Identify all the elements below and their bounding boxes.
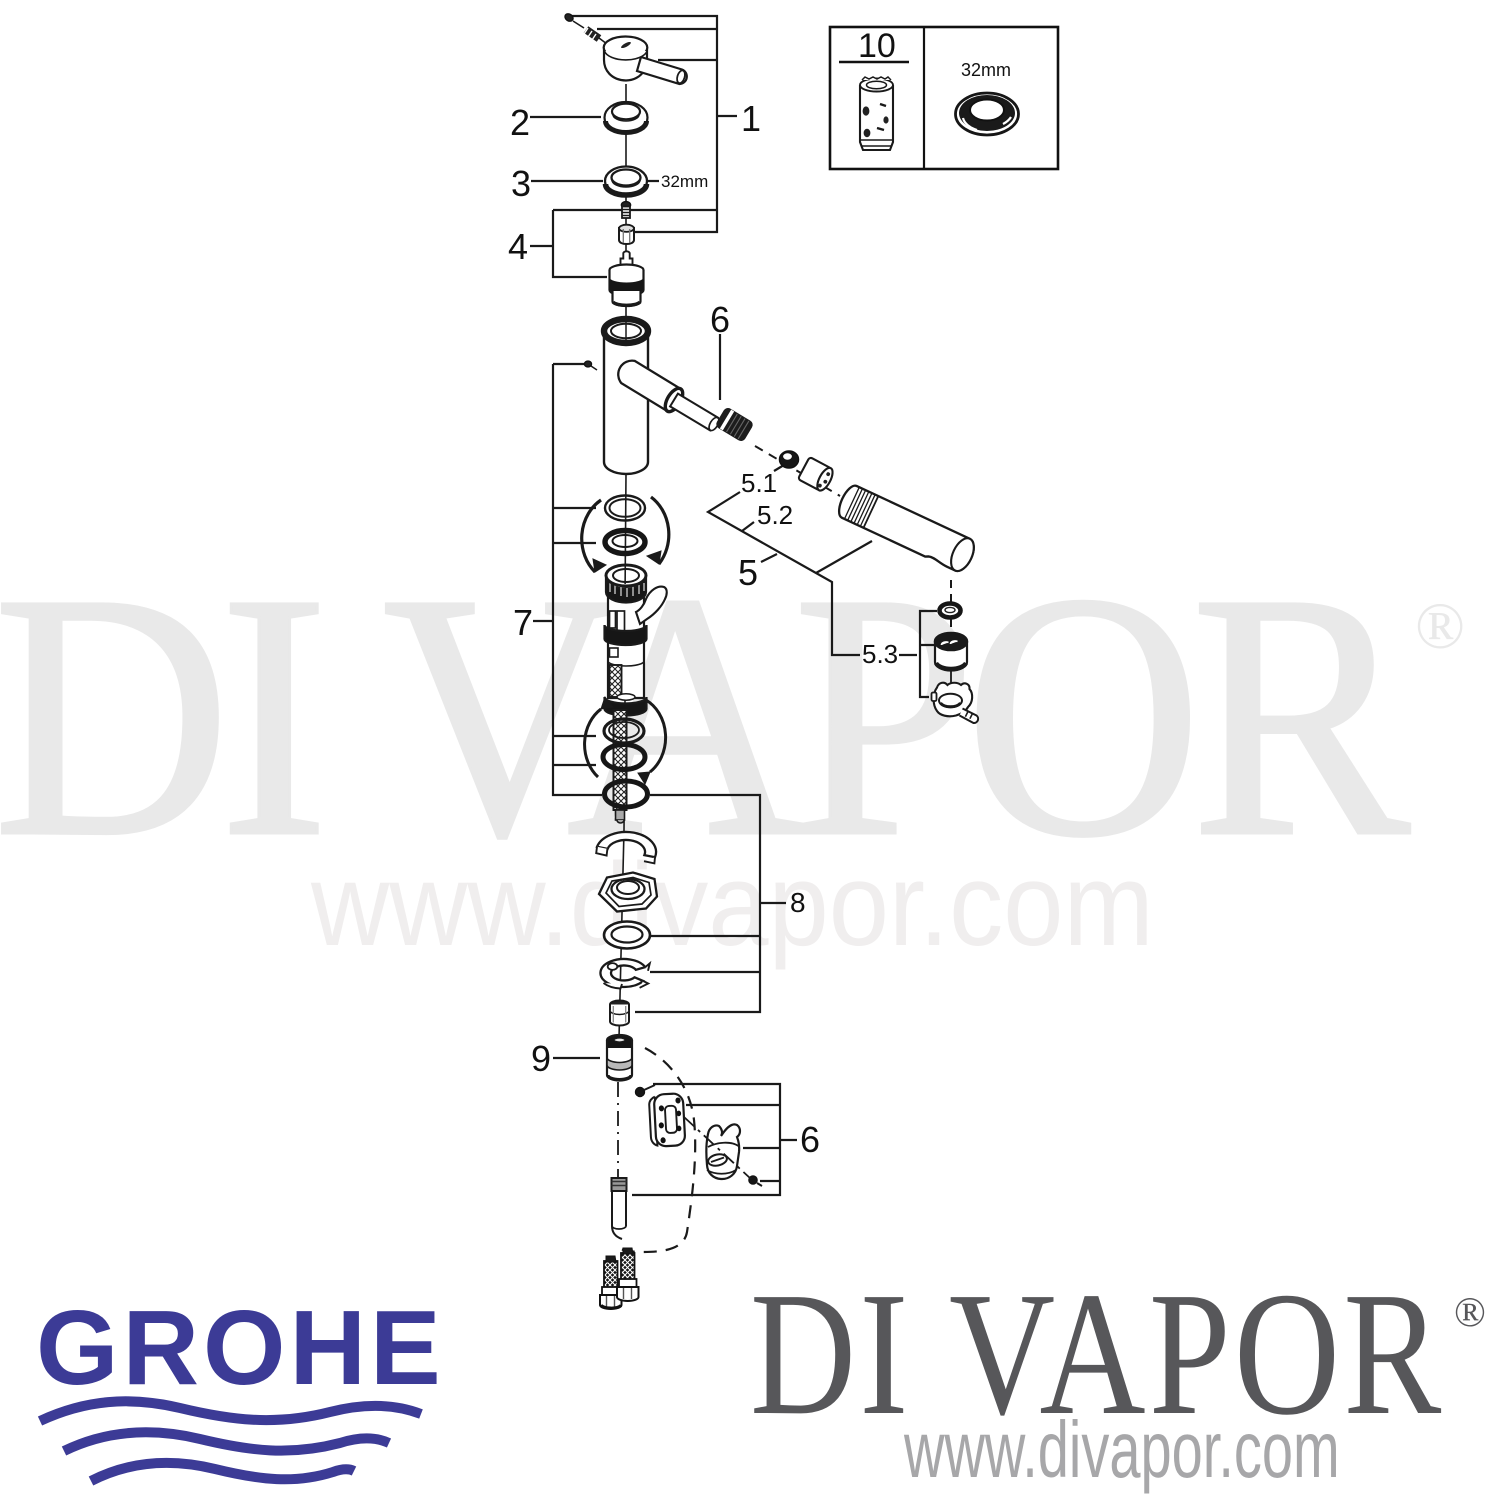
svg-text:5: 5 <box>738 552 758 593</box>
svg-text:1: 1 <box>741 98 761 139</box>
svg-text:®: ® <box>1454 1290 1486 1336</box>
svg-text:9: 9 <box>531 1038 551 1079</box>
svg-text:5.3: 5.3 <box>862 639 898 669</box>
svg-text:7: 7 <box>513 602 533 643</box>
svg-text:6: 6 <box>800 1119 820 1160</box>
svg-text:2: 2 <box>510 102 530 143</box>
svg-text:5.1: 5.1 <box>741 468 777 498</box>
svg-text:3: 3 <box>511 163 531 204</box>
svg-text:www.divapor.com: www.divapor.com <box>310 839 1154 971</box>
svg-text:4: 4 <box>508 226 528 267</box>
svg-text:32mm: 32mm <box>961 60 1011 80</box>
svg-text:32mm: 32mm <box>661 172 708 191</box>
svg-text:5.2: 5.2 <box>757 500 793 530</box>
svg-text:GROHE: GROHE <box>36 1289 445 1407</box>
svg-text:8: 8 <box>790 887 806 918</box>
svg-text:6: 6 <box>710 299 730 340</box>
svg-text:www.divapor.com: www.divapor.com <box>903 1404 1340 1494</box>
svg-text:10: 10 <box>858 27 896 65</box>
svg-text:®: ® <box>1415 590 1465 663</box>
